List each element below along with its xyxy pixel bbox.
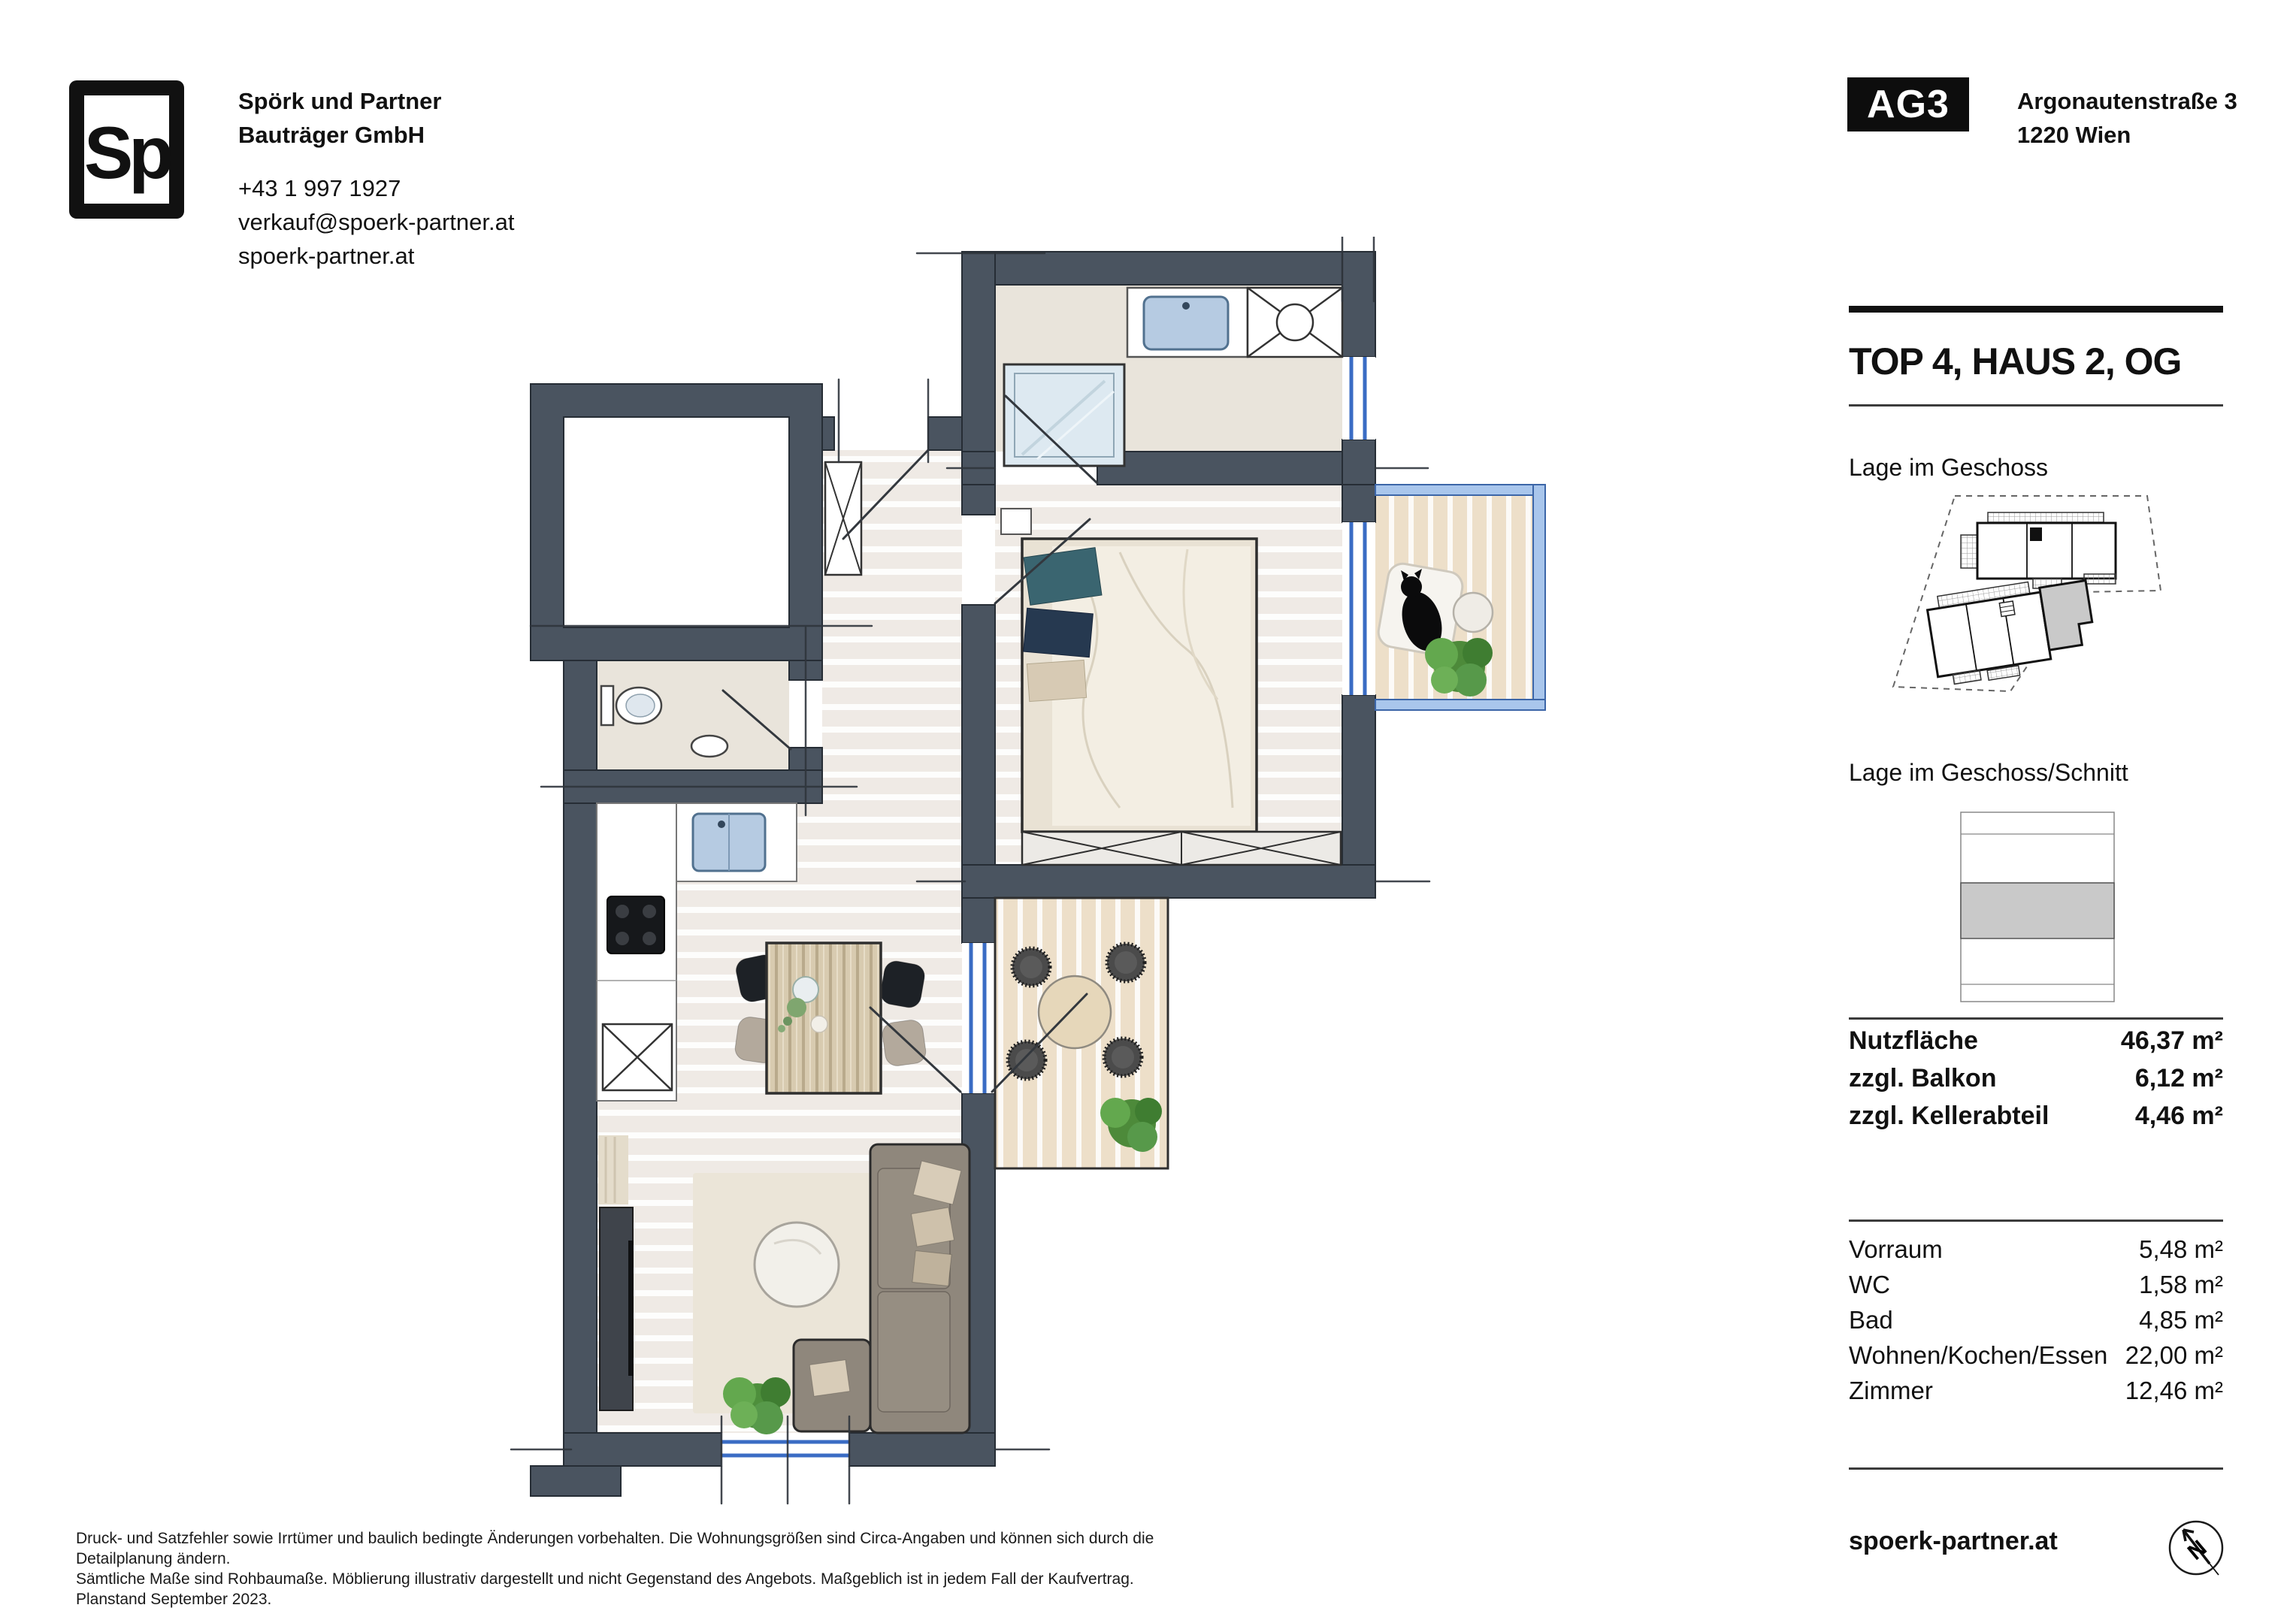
pillow: [1024, 548, 1102, 606]
company-name-line2: Bauträger GmbH: [238, 118, 514, 152]
company-email: verkauf@spoerk-partner.at: [238, 205, 514, 239]
balcony-side-table: [1454, 593, 1493, 632]
area-value: 4,46 m²: [2135, 1102, 2223, 1139]
company-block: Spörk und Partner Bauträger GmbH +43 1 9…: [238, 84, 514, 273]
room-label: WC: [1849, 1271, 1890, 1306]
table-row: WC 1,58 m²: [1849, 1271, 2223, 1306]
coffee-table: [755, 1223, 839, 1307]
room-value: 5,48 m²: [2139, 1235, 2223, 1271]
section2-label: Lage im Geschoss/Schnitt: [1849, 759, 2128, 787]
washing-machine: [1248, 288, 1342, 357]
area-summary-table: Nutzfläche 46,37 m² zzgl. Balkon 6,12 m²…: [1849, 1026, 2223, 1139]
table-row: zzgl. Kellerabteil 4,46 m²: [1849, 1102, 2223, 1139]
dining-chair: [881, 1019, 927, 1068]
highlighted-unit: [2040, 580, 2095, 650]
site-plan: [1883, 490, 2206, 723]
tv: [628, 1241, 634, 1376]
table-row: Wohnen/Kochen/Essen 22,00 m²: [1849, 1341, 2223, 1377]
rule-3: [1849, 1220, 2223, 1222]
room-label: Wohnen/Kochen/Essen: [1849, 1341, 2107, 1377]
balcony-plant-1: [1425, 638, 1493, 697]
project-badge: AG3: [1847, 77, 1969, 131]
area-label: Nutzfläche: [1849, 1026, 1978, 1064]
footer-website: spoerk-partner.at: [1849, 1527, 2058, 1556]
disclaimer: Druck- und Satzfehler sowie Irrtümer und…: [76, 1528, 1203, 1609]
address-line1: Argonautenstraße 3: [2017, 84, 2237, 118]
bed: [1022, 539, 1257, 832]
rule-2: [1849, 1017, 2223, 1020]
balcony-table: [1039, 976, 1111, 1048]
highlighted-floor: [1961, 883, 2114, 938]
curtain: [598, 1135, 628, 1204]
table-row: zzgl. Balkon 6,12 m²: [1849, 1064, 2223, 1102]
room-value: 12,46 m²: [2125, 1377, 2223, 1412]
table-row: Vorraum 5,48 m²: [1849, 1235, 2223, 1271]
unit-title: TOP 4, HAUS 2, OG: [1849, 340, 2225, 383]
room-label: Vorraum: [1849, 1235, 1943, 1271]
room-value: 22,00 m²: [2125, 1341, 2223, 1377]
company-website: spoerk-partner.at: [238, 239, 514, 273]
pillow: [1024, 608, 1094, 657]
company-name-line1: Spörk und Partner: [238, 84, 514, 118]
stove: [607, 896, 664, 954]
compass-north-icon: N: [2167, 1516, 2225, 1579]
room-label: Bad: [1849, 1306, 1893, 1341]
room-label: Zimmer: [1849, 1377, 1933, 1412]
room-value: 1,58 m²: [2139, 1271, 2223, 1306]
area-label: zzgl. Kellerabteil: [1849, 1102, 2049, 1139]
area-value: 6,12 m²: [2135, 1064, 2223, 1102]
nightstand: [1001, 509, 1031, 534]
entry-wardrobe: [825, 462, 861, 575]
disclaimer-line1: Druck- und Satzfehler sowie Irrtümer und…: [76, 1528, 1203, 1569]
area-value: 46,37 m²: [2121, 1026, 2223, 1064]
logo-text: Sp: [84, 116, 169, 189]
table-row: Zimmer 12,46 m²: [1849, 1377, 2223, 1412]
rule-4: [1849, 1467, 2223, 1470]
floor-plan-drawing: [496, 237, 1578, 1514]
section1-label: Lage im Geschoss: [1849, 454, 2048, 482]
tv-sideboard: [600, 1207, 633, 1410]
table-row: Nutzfläche 46,37 m²: [1849, 1026, 2223, 1064]
company-phone: +43 1 997 1927: [238, 171, 514, 205]
disclaimer-line2: Sämtliche Maße sind Rohbaumaße. Möblieru…: [76, 1569, 1203, 1609]
pillow: [1027, 660, 1086, 701]
built-in-wardrobe: [1022, 832, 1341, 865]
kitchen-cabinet-x: [603, 1024, 672, 1090]
company-logo: Sp: [69, 80, 184, 219]
rule-1: [1849, 404, 2223, 407]
building-haus2: [1925, 573, 2098, 688]
wc-basin: [691, 736, 728, 757]
room-table: Vorraum 5,48 m² WC 1,58 m² Bad 4,85 m² W…: [1849, 1235, 2223, 1412]
project-address: Argonautenstraße 3 1220 Wien: [2017, 84, 2237, 152]
area-label: zzgl. Balkon: [1849, 1064, 1996, 1102]
title-rule-thick: [1849, 306, 2223, 313]
room-value: 4,85 m²: [2139, 1306, 2223, 1341]
section-diagram: [1960, 811, 2115, 1002]
address-line2: 1220 Wien: [2017, 118, 2237, 152]
table-row: Bad 4,85 m²: [1849, 1306, 2223, 1341]
floorplan-sheet: Sp Spörk und Partner Bauträger GmbH +43 …: [0, 0, 2296, 1623]
building-haus1: [1961, 512, 2116, 588]
dining-chair: [879, 960, 926, 1009]
